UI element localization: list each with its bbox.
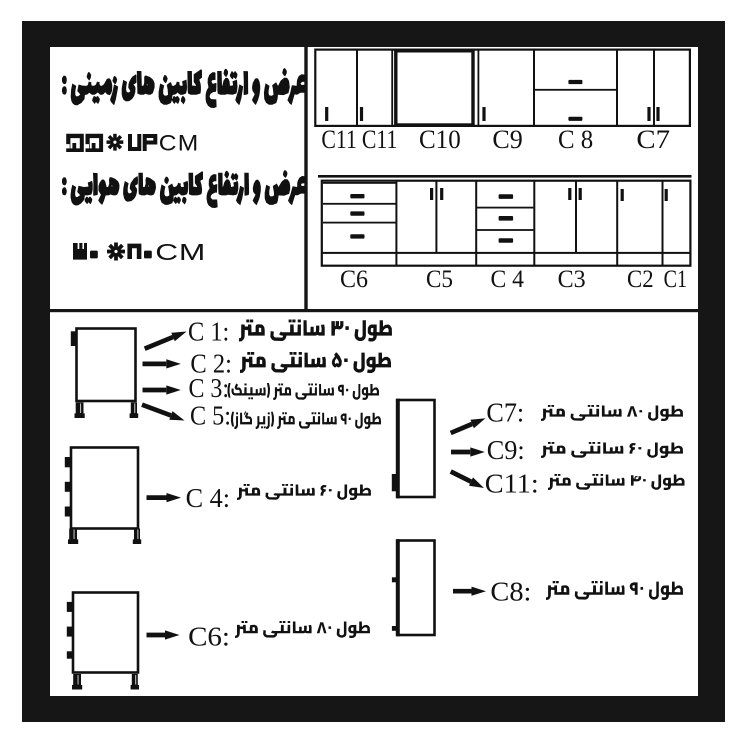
svg-text:C11: C11 <box>362 125 398 154</box>
svg-text:C 4:: C 4: <box>186 482 230 513</box>
svg-text:C 3:: C 3: <box>189 372 230 403</box>
svg-text:C3: C3 <box>558 266 586 293</box>
svg-text:C2: C2 <box>627 266 654 293</box>
svg-text:C9:: C9: <box>487 434 525 465</box>
svg-text:C 5:: C 5: <box>190 400 231 431</box>
svg-text:C8:: C8: <box>490 576 531 607</box>
svg-text:C10: C10 <box>419 125 461 154</box>
svg-text:C11: C11 <box>321 125 357 154</box>
svg-text:C 4: C 4 <box>491 266 525 293</box>
svg-text:C 1:: C 1: <box>188 315 229 346</box>
svg-text:C11:: C11: <box>485 468 539 499</box>
svg-text:C7: C7 <box>636 125 670 154</box>
svg-text:CM: CM <box>155 239 206 265</box>
svg-text:C5: C5 <box>426 266 453 293</box>
svg-text:C6: C6 <box>340 266 368 293</box>
svg-text:C7:: C7: <box>486 397 524 428</box>
svg-text:C9: C9 <box>492 125 522 154</box>
svg-text:C 8: C 8 <box>558 125 593 154</box>
svg-text:C1: C1 <box>664 266 687 293</box>
svg-text:CM: CM <box>159 131 200 155</box>
svg-text:C6:: C6: <box>188 621 230 652</box>
